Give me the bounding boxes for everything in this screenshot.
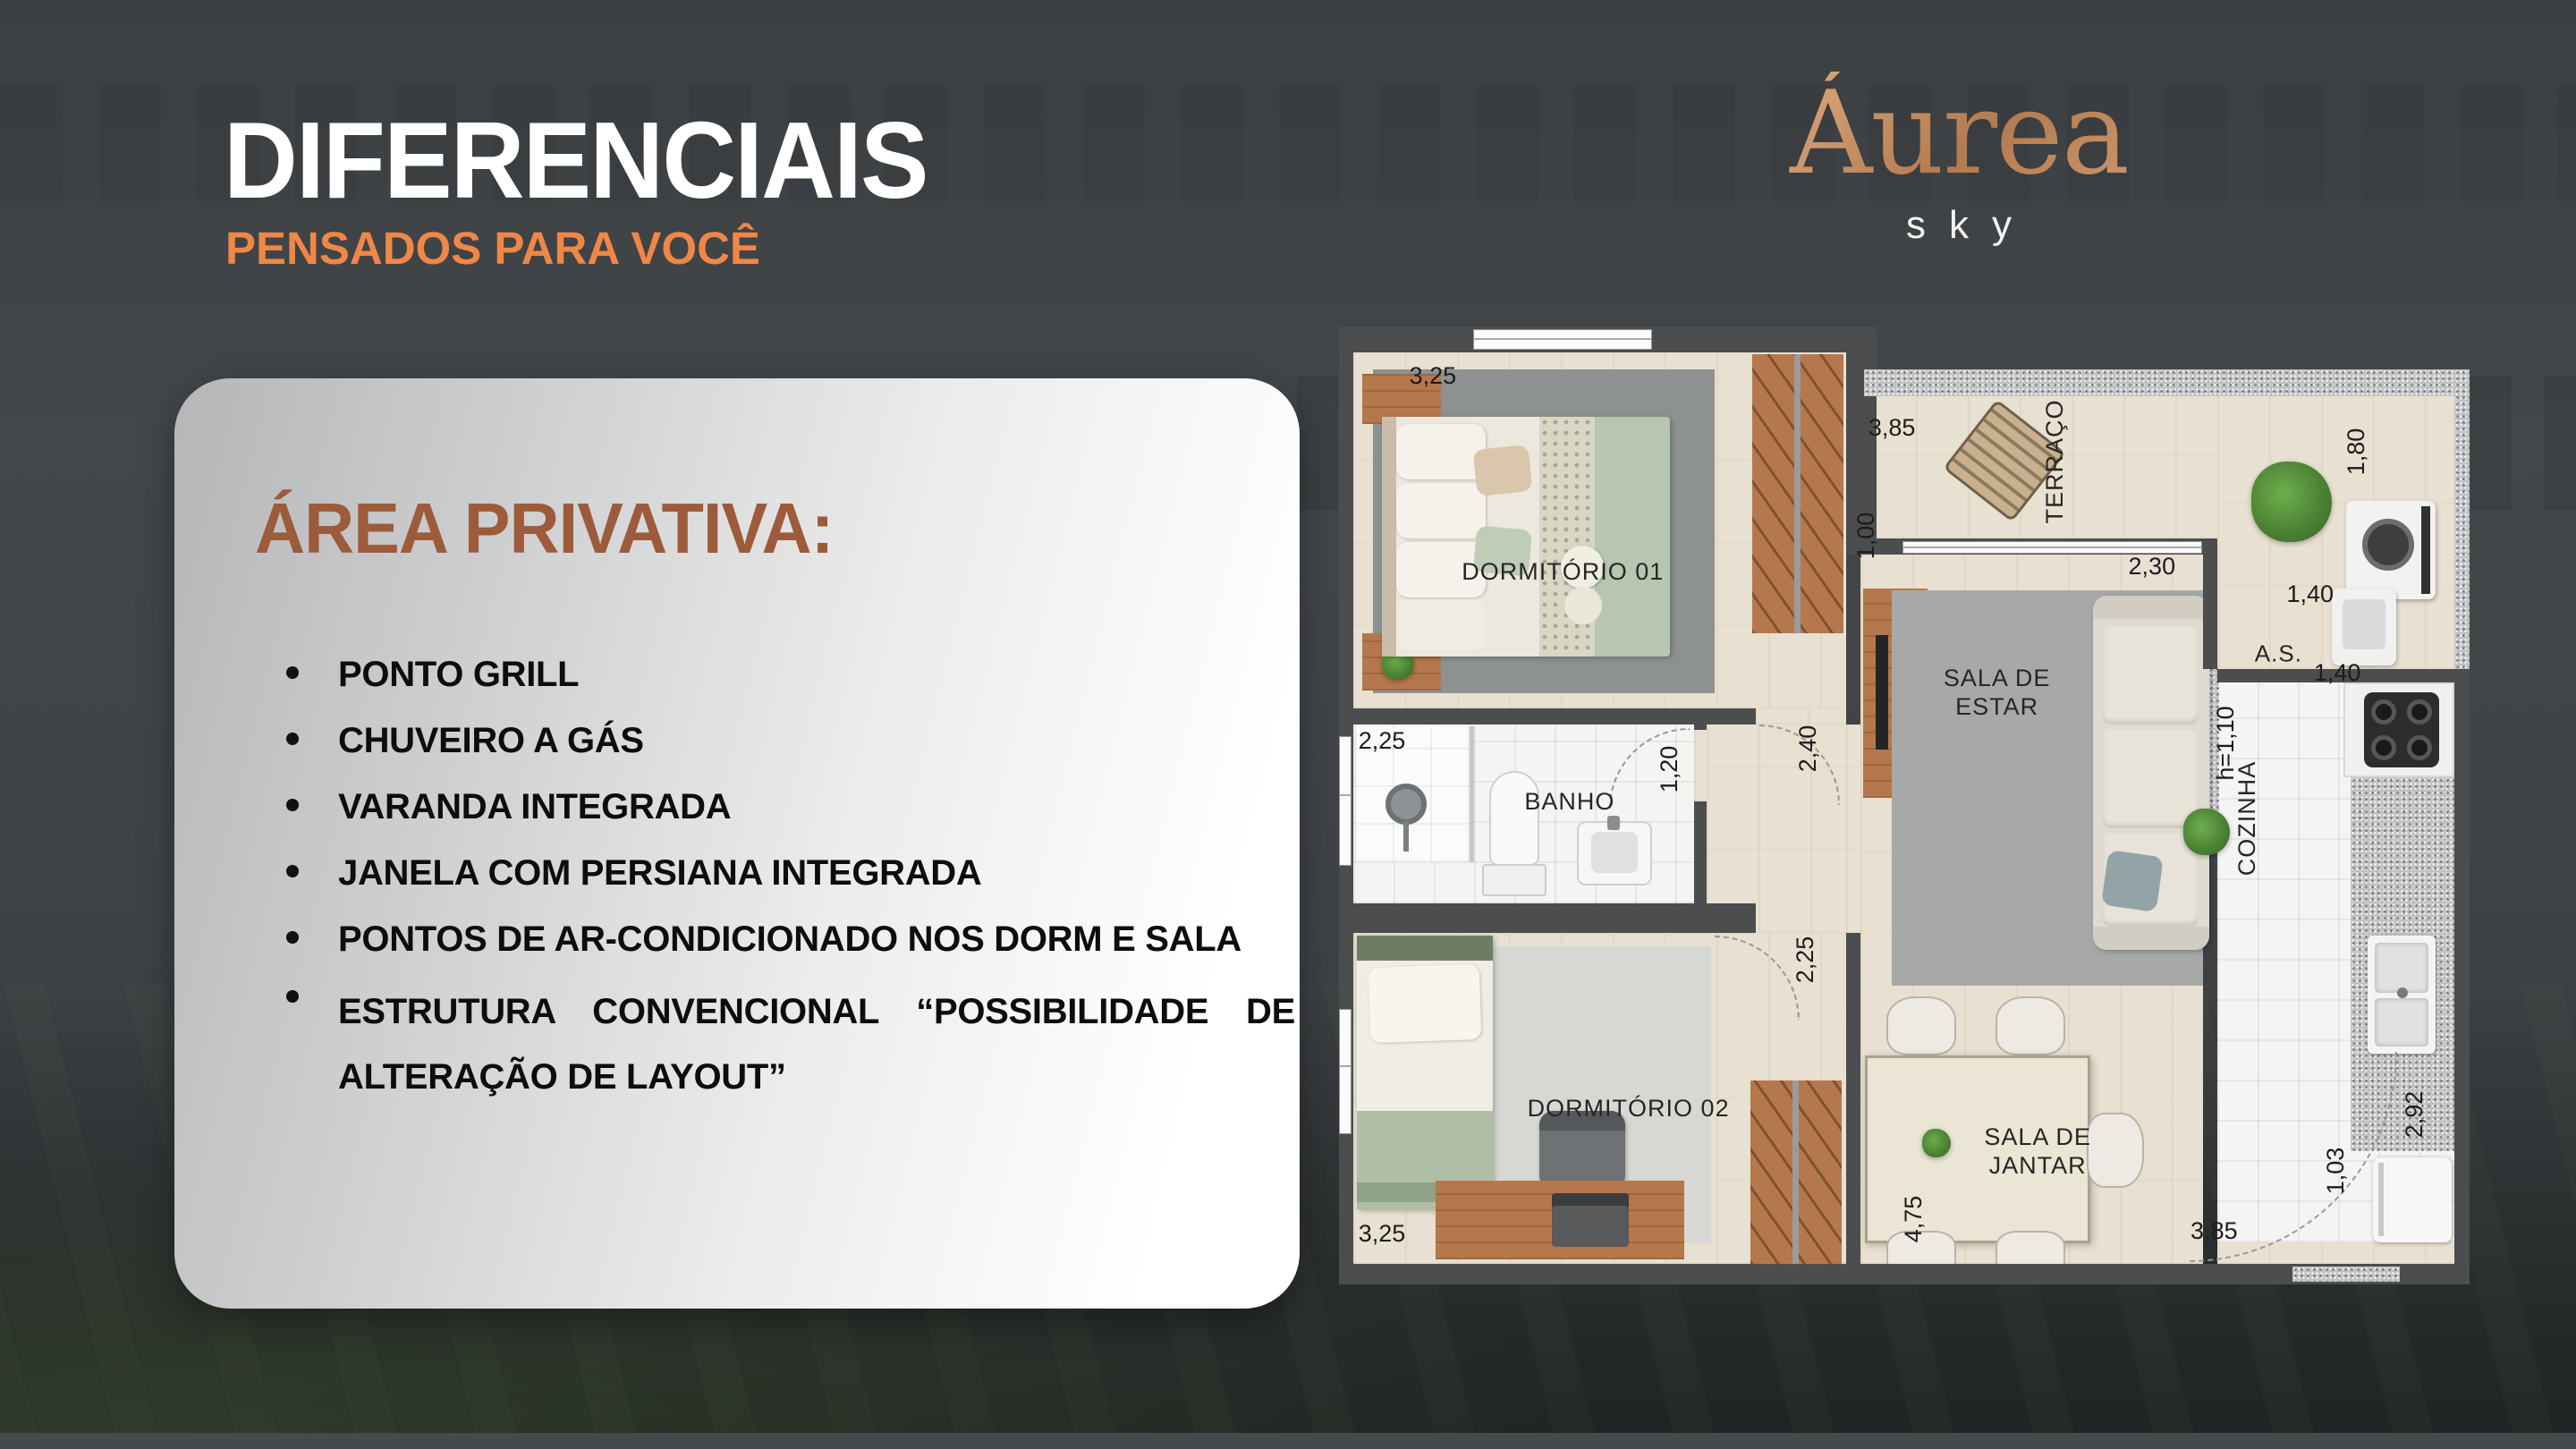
- dimension-label: 1,40: [2286, 580, 2334, 609]
- page-title: DIFERENCIAIS: [224, 106, 928, 215]
- dimension-label: 3,25: [1410, 362, 1457, 391]
- plan-annotations: DORMITÓRIO 01BANHODORMITÓRIO 02SALA DE E…: [1339, 320, 2470, 1284]
- background-bottom-strip: [0, 1433, 2576, 1449]
- room-label: BANHO: [1524, 788, 1614, 817]
- feature-item: CHUVEIRO A GÁS: [338, 722, 1295, 759]
- dimension-label: 1,40: [2314, 659, 2361, 688]
- dimension-label: 1,20: [1656, 746, 1684, 793]
- dimension-label: h=1,10: [2212, 707, 2241, 781]
- feature-item: PONTOS DE AR-CONDICIONADO NOS DORM E SAL…: [338, 920, 1295, 958]
- dimension-label: 2,25: [1359, 727, 1406, 756]
- feature-item: VARANDA INTEGRADA: [338, 788, 1295, 826]
- room-label: TERRAÇO: [2041, 400, 2070, 524]
- features-card: ÁREA PRIVATIVA: PONTO GRILL CHUVEIRO A G…: [174, 378, 1300, 1309]
- card-heading: ÁREA PRIVATIVA:: [255, 487, 1268, 570]
- dimension-label: 1,03: [2322, 1148, 2351, 1195]
- brand-subname: sky: [1767, 203, 2151, 248]
- dimension-label: 2,30: [2129, 553, 2176, 581]
- dimension-label: 3,85: [1868, 414, 1916, 443]
- brand-name: Áurea: [1767, 72, 2151, 198]
- room-label: SALA DE JANTAR: [1984, 1123, 2091, 1181]
- brand-logo: Áurea sky: [1767, 72, 2151, 248]
- dimension-label: 3,25: [1359, 1220, 1406, 1249]
- dimension-label: 3,85: [2190, 1217, 2238, 1246]
- feature-item: PONTO GRILL: [338, 656, 1295, 693]
- feature-item: ESTRUTURA CONVENCIONAL “POSSIBILIDADE DE…: [338, 979, 1295, 1110]
- room-label: A.S.: [2255, 640, 2302, 668]
- features-list: PONTO GRILL CHUVEIRO A GÁS VARANDA INTEG…: [338, 656, 1295, 1110]
- floor-plan: DORMITÓRIO 01BANHODORMITÓRIO 02SALA DE E…: [1339, 320, 2470, 1284]
- dimension-label: 4,75: [1900, 1195, 1928, 1242]
- dimension-label: 2,25: [1792, 936, 1820, 983]
- feature-item: JANELA COM PERSIANA INTEGRADA: [338, 854, 1295, 892]
- dimension-label: 1,00: [1852, 513, 1881, 560]
- room-label: DORMITÓRIO 01: [1462, 558, 1664, 587]
- page-subtitle: PENSADOS PARA VOCÊ: [225, 225, 760, 271]
- dimension-label: 2,92: [2401, 1091, 2429, 1139]
- room-label: SALA DE ESTAR: [1944, 665, 2051, 722]
- dimension-label: 1,80: [2343, 428, 2371, 475]
- dimension-label: 2,40: [1794, 724, 1823, 772]
- room-label: DORMITÓRIO 02: [1528, 1095, 1730, 1123]
